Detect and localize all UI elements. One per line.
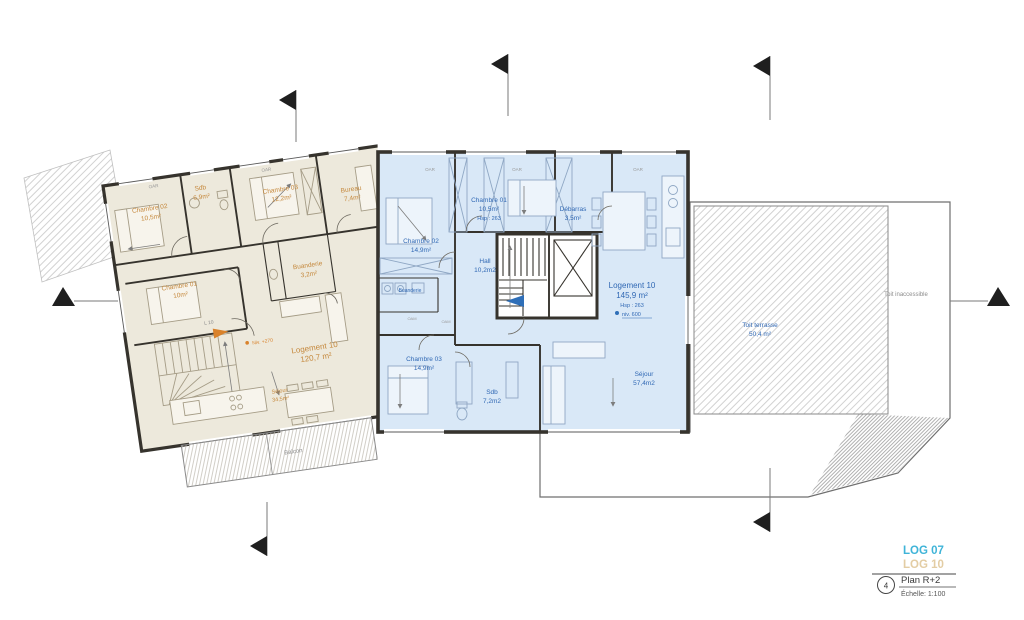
room-label: Buanderie xyxy=(399,288,422,294)
equipment-tag: OAM xyxy=(407,316,416,321)
section-marker-top-2 xyxy=(491,54,508,116)
sofa xyxy=(543,366,565,424)
sheet-number: 4 xyxy=(884,582,889,591)
room-label: Chambre 01 xyxy=(471,197,507,204)
room-area: 10,5m² xyxy=(479,206,500,213)
floor-plan-page: Toit terrasse 50,4 m² Toit inaccessible xyxy=(0,0,1024,620)
room-area: 7,2m2 xyxy=(483,398,501,405)
closet-tag: OAR xyxy=(425,167,436,172)
section-marker-top-1 xyxy=(279,90,296,142)
terrace-label: Toit terrasse xyxy=(742,322,778,329)
room-area: 3,5m² xyxy=(565,215,582,222)
unit-area: 145,9 m² xyxy=(616,291,648,300)
title-block: LOG 07 LOG 10 4 Plan R+2 Échelle: 1:100 xyxy=(872,545,956,598)
unit-hsp: Hsp : 263 xyxy=(620,303,644,309)
roof-inaccessible-label: Toit inaccessible xyxy=(884,292,928,298)
room-area: 10,2m2 xyxy=(474,267,496,274)
section-marker-top-3 xyxy=(753,56,770,120)
floor-plan-canvas: Toit terrasse 50,4 m² Toit inaccessible xyxy=(0,0,1024,620)
level-note: niv. 600 xyxy=(622,312,641,318)
room-label: Sdb xyxy=(486,389,498,396)
roof-terrace-area xyxy=(694,206,888,414)
kitchen-counter xyxy=(662,176,684,258)
plan-title: Plan R+2 xyxy=(901,575,940,586)
closet-tag: OAR xyxy=(512,167,523,172)
room-label: Chambre 03 xyxy=(406,356,442,363)
room-label: Débarras xyxy=(560,206,587,213)
section-marker-left xyxy=(52,287,118,306)
legend-log07: LOG 07 xyxy=(903,545,944,557)
legend-log10: LOG 10 xyxy=(903,559,944,571)
stair-core xyxy=(497,234,597,318)
level-marker-dot xyxy=(615,311,619,315)
closet-tag: OAR xyxy=(633,167,644,172)
room-area: 14,9m² xyxy=(411,247,432,254)
bed xyxy=(388,366,428,414)
room-hsp: Hsp : 263 xyxy=(477,216,501,222)
room-label: Hall xyxy=(479,258,491,265)
room-area: 14,9m² xyxy=(414,365,435,372)
plan-scale: Échelle: 1:100 xyxy=(901,589,945,598)
room-label: Chambre 02 xyxy=(403,238,439,245)
room-area: 57,4m2 xyxy=(633,380,655,387)
section-marker-bottom-1 xyxy=(250,502,267,556)
equipment-tag: OAM xyxy=(441,319,450,324)
unit-name: Logement 10 xyxy=(609,281,656,290)
apartment-log07: Chambre 02 14,9m² Chambre 01 10,5m² Hsp … xyxy=(378,152,688,432)
bed xyxy=(508,180,556,216)
room-label: Séjour xyxy=(635,371,655,378)
terrace-area-label: 50,4 m² xyxy=(749,331,772,338)
section-marker-right xyxy=(950,287,1010,306)
sideboard xyxy=(553,342,605,358)
